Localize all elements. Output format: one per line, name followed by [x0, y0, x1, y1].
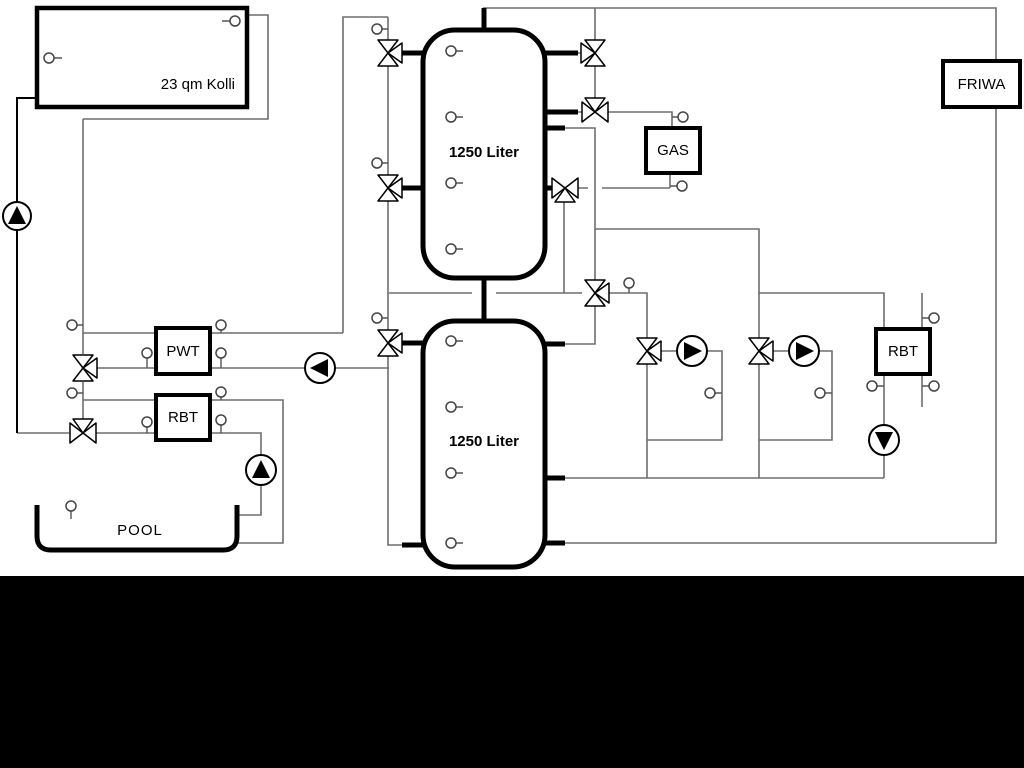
- three-way-valve-icon[interactable]: [378, 330, 402, 356]
- temperature-sensor-icon[interactable]: [446, 468, 456, 478]
- temperature-sensor-icon[interactable]: [446, 46, 456, 56]
- temperature-sensor-icon[interactable]: [372, 158, 382, 168]
- pump-icon[interactable]: [3, 202, 31, 230]
- three-way-valve-icon[interactable]: [749, 338, 773, 364]
- pump-icon[interactable]: [305, 353, 335, 383]
- footer-bar: [0, 576, 1024, 768]
- temperature-sensor-icon[interactable]: [677, 181, 687, 191]
- pump-icon[interactable]: [677, 336, 707, 366]
- temperature-sensor-icon[interactable]: [446, 178, 456, 188]
- pump-icon[interactable]: [789, 336, 819, 366]
- temperature-sensor-icon[interactable]: [446, 112, 456, 122]
- temperature-sensor-icon[interactable]: [44, 53, 54, 63]
- temperature-sensor-icon[interactable]: [230, 16, 240, 26]
- temperature-sensor-icon[interactable]: [66, 501, 76, 511]
- temperature-sensor-icon[interactable]: [67, 388, 77, 398]
- three-way-valve-icon[interactable]: [637, 338, 661, 364]
- temperature-sensor-icon[interactable]: [142, 348, 152, 358]
- rbt-left-label: RBT: [156, 395, 210, 440]
- temperature-sensor-icon[interactable]: [446, 402, 456, 412]
- temperature-sensor-icon[interactable]: [929, 313, 939, 323]
- collector-label: 23 qm Kolli: [57, 74, 235, 94]
- temperature-sensor-icon[interactable]: [216, 387, 226, 397]
- three-way-valve-icon[interactable]: [582, 98, 608, 122]
- temperature-sensor-icon[interactable]: [624, 278, 634, 288]
- friwa-label: FRIWA: [943, 61, 1020, 107]
- three-way-valve-icon[interactable]: [378, 40, 402, 66]
- temperature-sensor-icon[interactable]: [372, 313, 382, 323]
- temperature-sensor-icon[interactable]: [815, 388, 825, 398]
- temperature-sensor-icon[interactable]: [216, 348, 226, 358]
- three-way-valve-icon[interactable]: [552, 178, 578, 202]
- three-way-valve-icon[interactable]: [70, 419, 96, 443]
- temperature-sensor-icon[interactable]: [216, 320, 226, 330]
- three-way-valve-icon[interactable]: [378, 175, 402, 201]
- temperature-sensor-icon[interactable]: [867, 381, 877, 391]
- rbt-right-label: RBT: [876, 329, 930, 374]
- temperature-sensor-icon[interactable]: [929, 381, 939, 391]
- schematic-page: 23 qm Kolli 1250 Liter 1250 Liter PWT RB…: [0, 0, 1024, 768]
- temperature-sensor-icon[interactable]: [678, 112, 688, 122]
- pool-label: POOL: [57, 520, 223, 540]
- pump-icon[interactable]: [246, 455, 276, 485]
- collector-loop-pipe: [17, 98, 37, 433]
- upper-tank-label: 1250 Liter: [423, 142, 545, 162]
- pwt-label: PWT: [156, 328, 210, 374]
- temperature-sensor-icon[interactable]: [216, 415, 226, 425]
- temperature-sensor-icon[interactable]: [372, 24, 382, 34]
- temperature-sensor-icon[interactable]: [705, 388, 715, 398]
- temperature-sensor-icon[interactable]: [142, 417, 152, 427]
- temperature-sensor-icon[interactable]: [446, 538, 456, 548]
- pump-icon[interactable]: [869, 425, 899, 455]
- three-way-valve-icon[interactable]: [585, 280, 609, 306]
- temperature-sensor-icon[interactable]: [446, 244, 456, 254]
- gas-label: GAS: [646, 128, 700, 173]
- lower-tank-label: 1250 Liter: [423, 431, 545, 451]
- three-way-valve-icon[interactable]: [73, 355, 97, 381]
- temperature-sensor-icon[interactable]: [67, 320, 77, 330]
- temperature-sensor-icon[interactable]: [446, 336, 456, 346]
- three-way-valve-icon[interactable]: [581, 40, 605, 66]
